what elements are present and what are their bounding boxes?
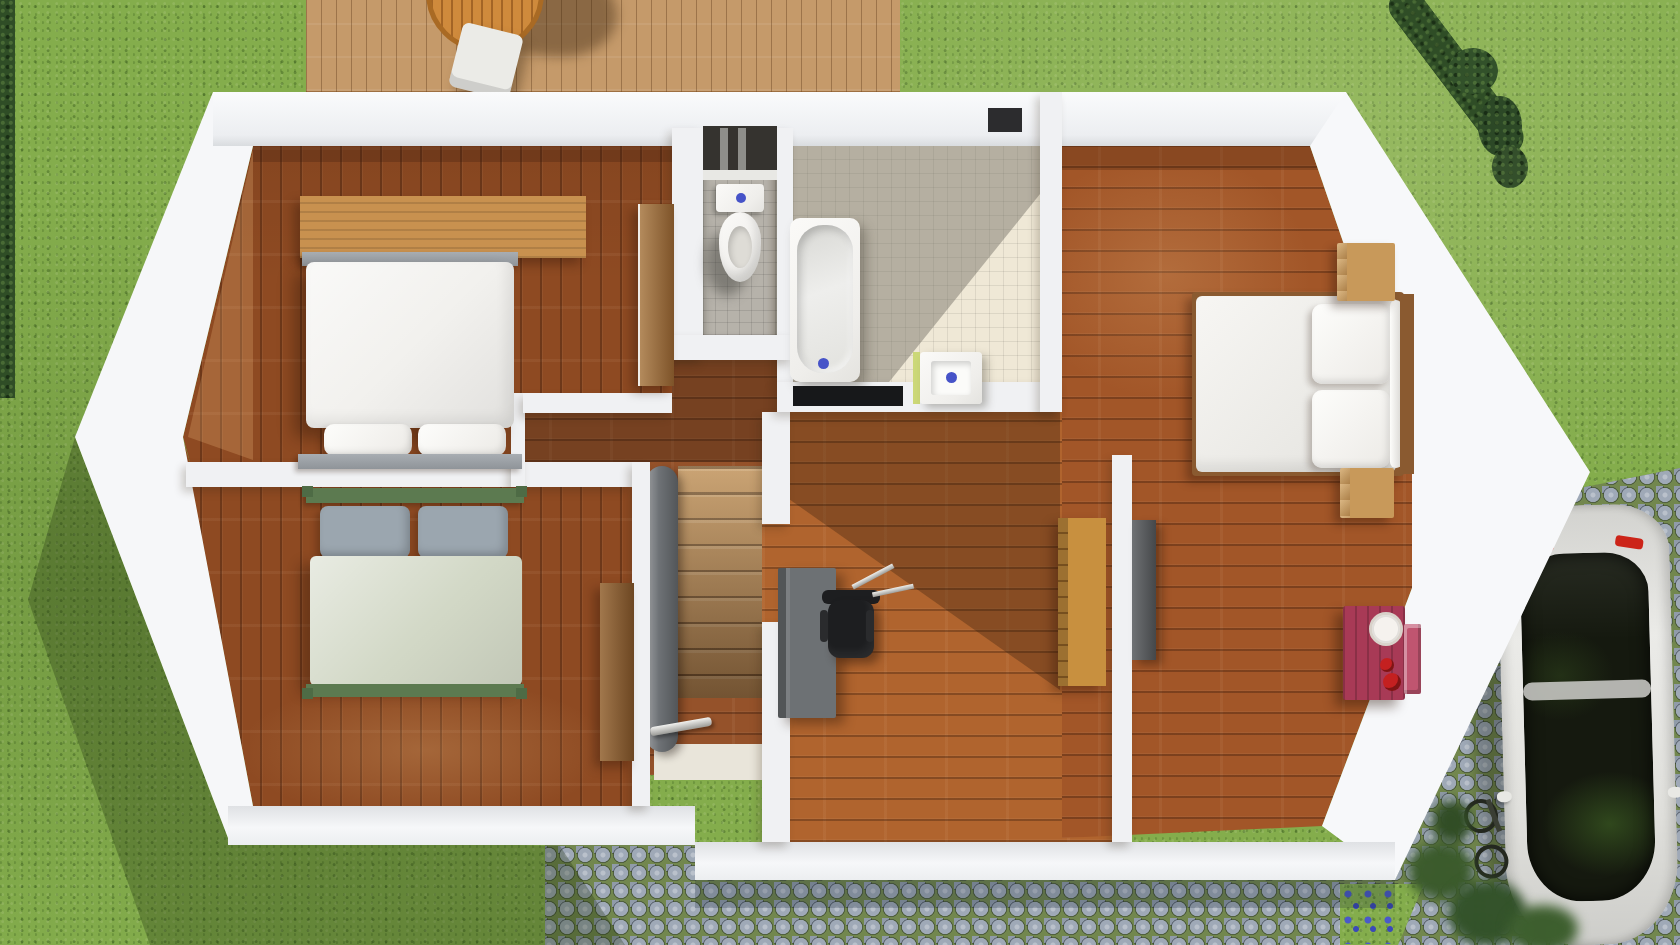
bed2-duvet: [310, 556, 522, 686]
car-glass-canopy: [1520, 551, 1657, 902]
bed1-duvet: [306, 262, 514, 428]
bath-mat-black: [793, 386, 903, 406]
bed2-pillow-right: [418, 506, 508, 558]
bathtub-drain: [818, 358, 829, 369]
bed3-pillow-bottom: [1312, 390, 1390, 468]
staircase-winder-steps: [678, 696, 762, 768]
bed3-headboard-wood: [1400, 294, 1414, 474]
wall-wc-west: [672, 128, 703, 360]
wall-wc-south: [672, 335, 793, 360]
wc-niche-bar-2: [738, 128, 746, 174]
toilet-flush-button: [736, 193, 746, 203]
bedroom1-open-door: [638, 204, 674, 386]
staircase-treads: [678, 466, 762, 698]
car-roof-bar: [1523, 679, 1651, 700]
northeast-hedge-bush-1: [1448, 48, 1498, 94]
bed1-pillow-right: [418, 424, 506, 456]
car-mirror-right: [1668, 787, 1680, 798]
wall-bedroom1-south: [523, 393, 672, 413]
bedroom1-wood-rug: [300, 196, 586, 258]
bedroom-1-north-shadow: [253, 146, 672, 162]
dresser-toy-large: [1383, 673, 1401, 691]
wc-niche-bar-1: [720, 128, 728, 174]
bed3-pillow-top: [1312, 304, 1390, 384]
towel-green: [913, 352, 920, 404]
shelving-unit: [1058, 518, 1106, 686]
bed2-footboard: [306, 684, 524, 697]
wall-office-west-upper: [762, 412, 790, 524]
bicycle-wheel-front: [1470, 840, 1513, 883]
nightstand-top: [1337, 243, 1395, 301]
wall-south-middle: [695, 842, 1395, 880]
floor-plan-scene: [0, 0, 1680, 945]
sink-drain: [946, 372, 957, 383]
shrub-3: [1508, 905, 1578, 945]
north-wall-door-mark: [988, 108, 1022, 132]
office-chair-armrest-left: [820, 610, 828, 642]
bed1-pillow-left: [324, 424, 412, 456]
bedroom3-open-door: [1132, 520, 1156, 660]
wall-bathroom-east: [1040, 92, 1062, 412]
wall-bedroom3-west: [1112, 455, 1132, 842]
dresser-clock: [1369, 612, 1403, 646]
bed2-post-tr: [516, 486, 527, 497]
dresser-mirror: [1404, 624, 1421, 694]
northeast-hedge-bush-3: [1492, 146, 1528, 188]
bed2-post-tl: [302, 486, 313, 497]
left-hedge: [0, 0, 15, 398]
toilet-bowl-inner: [728, 226, 752, 268]
bed2-post-br: [516, 688, 527, 699]
bed2-headboard: [306, 488, 524, 503]
house-shadow-on-cobbles: [695, 880, 1395, 908]
shrub-4: [1432, 800, 1472, 844]
wc-niche-sill: [703, 170, 777, 180]
bed2-post-bl: [302, 688, 313, 699]
bedroom2-wardrobe: [600, 583, 634, 761]
bed1-headboard: [298, 454, 522, 469]
dresser-toy-small: [1380, 658, 1394, 672]
bathtub-basin: [797, 225, 853, 373]
wc-niche: [703, 126, 777, 176]
wall-south-left: [228, 806, 695, 845]
office-chair-armrest-right: [866, 610, 874, 642]
nightstand-bottom: [1340, 468, 1394, 518]
stair-banister: [646, 466, 678, 752]
wall-stairwell-west: [632, 462, 650, 806]
bed2-pillow-left: [320, 506, 410, 558]
